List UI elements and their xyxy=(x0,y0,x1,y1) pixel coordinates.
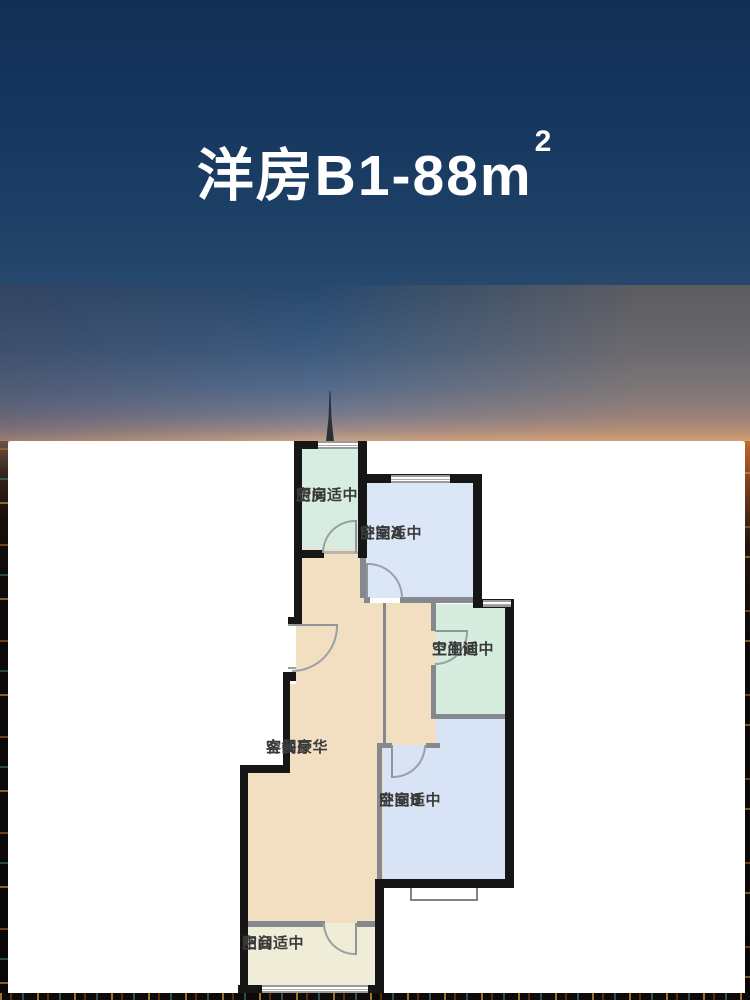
room-grade: 空间适中 xyxy=(242,933,304,954)
bedroom-a-window xyxy=(391,475,450,483)
room-grade: 空间适中 xyxy=(379,790,441,811)
bathroom-window xyxy=(483,600,511,607)
wall xyxy=(431,602,436,631)
wall xyxy=(294,441,302,624)
title-superscript: 2 xyxy=(535,125,554,158)
city-strip-bottom xyxy=(0,993,750,1000)
sunset-glow-overlay xyxy=(0,285,750,441)
balcony-door-leaf xyxy=(355,923,357,955)
kitchen-window xyxy=(318,441,358,449)
balcony-window xyxy=(262,985,368,993)
kitchen-door-leaf xyxy=(355,520,357,553)
title-text: 洋房B1-88m xyxy=(197,144,533,208)
page-title: 洋房B1-88m2 xyxy=(0,130,750,212)
wall xyxy=(283,677,290,773)
city-strip-right xyxy=(745,441,750,1000)
room-grade: 空间豪华 xyxy=(266,737,328,758)
bay-window xyxy=(410,888,478,901)
wall xyxy=(377,743,382,884)
room-grade: 空间适中 xyxy=(432,639,494,660)
poster: 洋房B1-88m2 xyxy=(0,0,750,1000)
corridor-divider-wall xyxy=(383,603,386,745)
floorplan-panel: 厨房 空间适中 卧室A 空间适中 卫生间 空间适中 客餐厅 空间豪华 卧室B 空… xyxy=(8,441,745,993)
wall xyxy=(288,617,302,624)
wall xyxy=(400,597,474,603)
room-grade: 空间适中 xyxy=(360,523,422,544)
wall xyxy=(294,550,324,558)
wall xyxy=(375,879,514,888)
wall xyxy=(431,665,436,718)
city-strip-left xyxy=(0,441,8,1000)
bedroom-b-room-upper xyxy=(432,718,510,746)
wall xyxy=(426,743,440,748)
wall xyxy=(375,879,384,993)
wall xyxy=(431,714,511,719)
room-grade: 空间适中 xyxy=(296,485,358,506)
wall xyxy=(505,599,514,888)
wall xyxy=(473,474,482,600)
balcony-partition-wall xyxy=(244,921,325,927)
wall xyxy=(240,765,248,993)
